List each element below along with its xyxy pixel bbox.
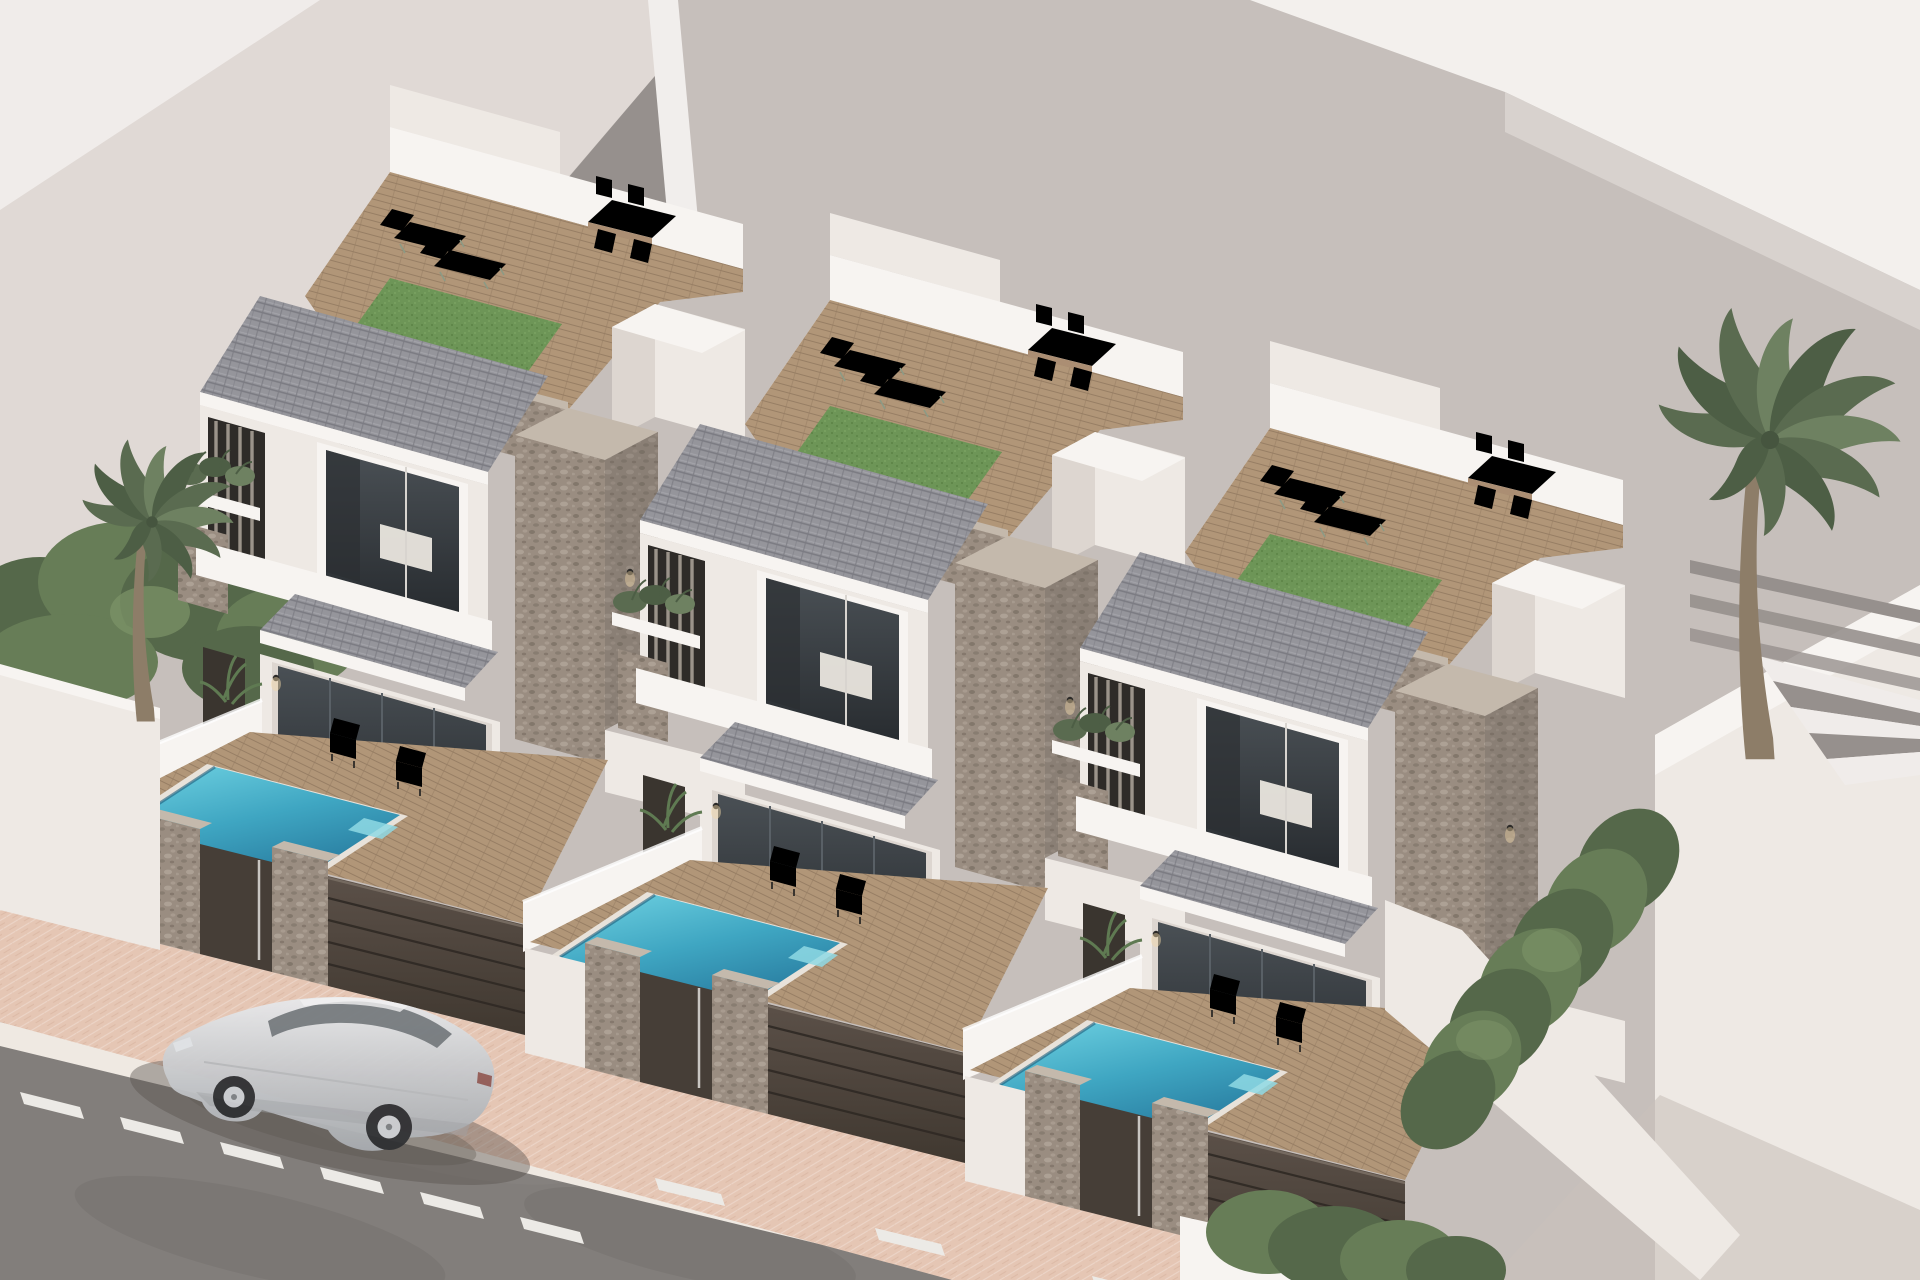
render-canvas xyxy=(0,0,1920,1280)
villa-render xyxy=(0,0,1920,1280)
